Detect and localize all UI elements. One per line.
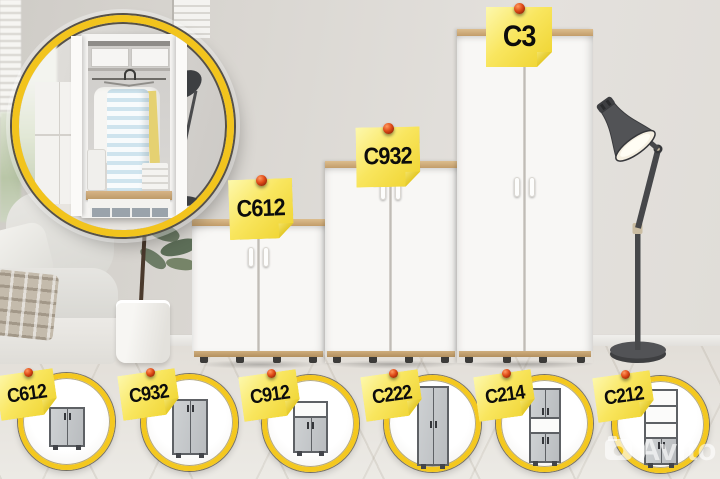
- pin-icon: [383, 123, 394, 134]
- thumb-cabinet-c612: [49, 407, 85, 447]
- cabinet-foot: [333, 357, 341, 363]
- sticky-note-c612: C612: [228, 178, 294, 240]
- note-label: C912: [249, 381, 291, 409]
- cabinet-c3: [457, 29, 593, 363]
- note-label: C932: [128, 380, 170, 408]
- pin-icon: [146, 368, 155, 377]
- door-handle: [529, 177, 535, 197]
- sticky-note-c932: C932: [355, 126, 420, 187]
- pin-icon: [621, 370, 630, 379]
- storage-box: [131, 48, 169, 67]
- pin-icon: [256, 175, 267, 186]
- pin-icon: [502, 369, 511, 378]
- door-handle: [263, 247, 269, 267]
- watermark: Avito: [605, 434, 717, 465]
- note-label: C214: [484, 381, 526, 409]
- cabinet-foot: [236, 357, 244, 363]
- note-label: C212: [603, 382, 645, 410]
- cabinet-foot: [405, 357, 413, 363]
- cabinet-foot: [441, 357, 449, 363]
- floor-lamp: [574, 92, 686, 368]
- cabinet-plinth: [194, 351, 323, 357]
- note-label: C3: [503, 20, 536, 54]
- pin-icon: [24, 368, 33, 377]
- cabinet-foot: [465, 357, 473, 363]
- cabinet-plinth: [459, 351, 591, 357]
- cabinet-door-gap: [523, 36, 526, 351]
- cabinet-foot: [539, 357, 547, 363]
- inset-wardrobe: [81, 34, 177, 218]
- cabinet-foot: [503, 357, 511, 363]
- pin-icon: [389, 369, 398, 378]
- white-bag: [87, 149, 106, 191]
- door-handle: [514, 177, 520, 197]
- cabinet-c612: [192, 219, 325, 363]
- camera-icon: [605, 439, 632, 460]
- cabinet-foot: [369, 357, 377, 363]
- thumb-cabinet-c912: [293, 401, 328, 453]
- pin-icon: [514, 3, 525, 14]
- watermark-text: Avito: [638, 434, 717, 465]
- folded-towels: [142, 163, 168, 191]
- open-door-left: [71, 36, 82, 216]
- pin-icon: [267, 369, 276, 378]
- note-label: C222: [371, 381, 413, 409]
- cabinet-door-gap: [389, 168, 392, 351]
- listing-photo: C612 C932 C3: [0, 0, 720, 479]
- storage-box: [91, 48, 129, 67]
- open-door-right: [176, 36, 187, 216]
- cabinet-plinth: [327, 351, 455, 357]
- cabinet-door-gap: [257, 226, 260, 351]
- hanger-hook: [124, 69, 136, 80]
- cabinet-foot: [200, 357, 208, 363]
- note-label: C932: [364, 143, 413, 172]
- cabinet-foot: [273, 357, 281, 363]
- note-label: C612: [6, 380, 48, 408]
- note-label: C612: [237, 194, 286, 224]
- cabinet-c932: [325, 161, 457, 363]
- plant-pot: [116, 300, 170, 363]
- inset-photo-circle: [12, 15, 234, 237]
- cabinet-foot: [309, 357, 317, 363]
- wardrobe-interior: [88, 41, 170, 208]
- plaid-blanket: [0, 269, 59, 341]
- sticky-note-c3: C3: [486, 7, 552, 67]
- thumb-cabinet-c932: [172, 399, 208, 455]
- door-handle: [248, 247, 254, 267]
